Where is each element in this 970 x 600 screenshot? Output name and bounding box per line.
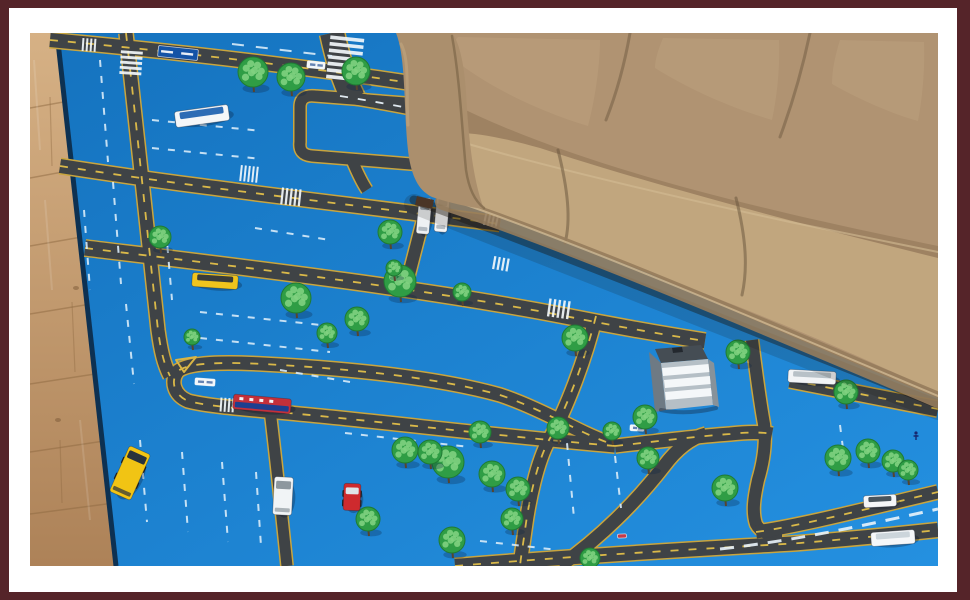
wood-knot — [55, 418, 61, 422]
mat-sign — [617, 534, 626, 538]
product-image — [0, 0, 970, 600]
mat-sign — [195, 378, 215, 386]
toy-red-car — [342, 483, 364, 513]
lifestyle-photo — [30, 33, 938, 573]
wood-knot — [73, 286, 79, 290]
building-part — [672, 347, 683, 353]
mat-sign — [307, 61, 326, 70]
scene-svg — [0, 0, 970, 600]
